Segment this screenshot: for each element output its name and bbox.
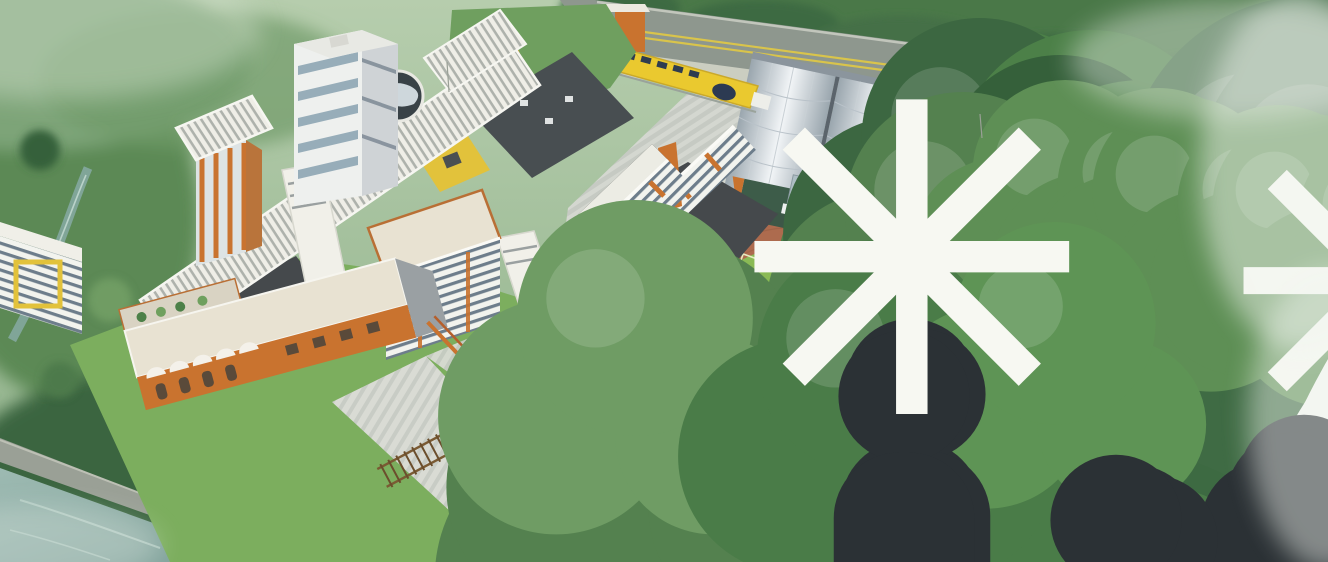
campus-rendering bbox=[0, 0, 1328, 562]
campus-rendering-canvas bbox=[0, 0, 1328, 562]
tower-glass-bands bbox=[294, 30, 398, 206]
